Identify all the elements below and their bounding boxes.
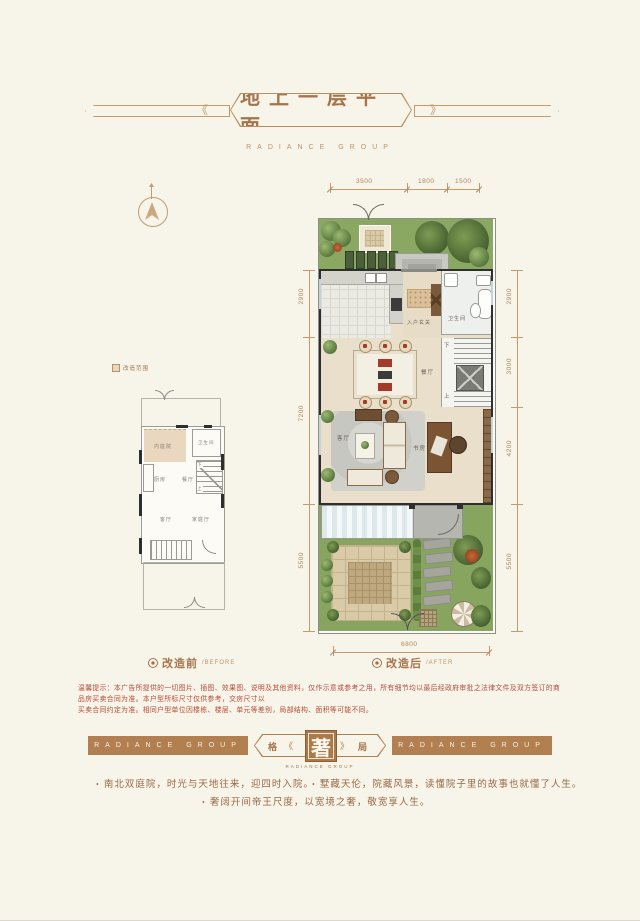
dim-label: 1800: [418, 178, 434, 185]
dim-label: 7200: [298, 405, 305, 421]
staircase: 下 上: [441, 338, 492, 407]
seal-chevron-right-icon: 》: [340, 739, 349, 752]
room-label-dining: 餐厅: [182, 476, 194, 483]
coffee-table: [355, 433, 375, 459]
room-label-family: 家庭厅: [192, 516, 210, 523]
dim-label: 5500: [506, 553, 513, 569]
rear-landing: [413, 505, 463, 539]
bathroom-area: 卫生间: [441, 271, 492, 335]
stove: [391, 298, 402, 311]
desk-chair: [449, 436, 467, 454]
before-stair-lower: [150, 540, 192, 560]
seal-char-left: 格: [268, 740, 277, 753]
sofa-second: [347, 469, 383, 486]
caption-after-en: /AFTER: [426, 660, 453, 666]
dim-label: 4200: [506, 440, 513, 456]
after-floorplan: 入户玄关 卫生间 餐厅: [318, 218, 496, 634]
room-label-courtyard: 内庭院: [154, 443, 172, 450]
stair-label-up: 上: [197, 486, 203, 492]
planter-bed: [356, 251, 365, 269]
brand-subtitle: RADIANCE GROUP: [0, 144, 640, 151]
kitchen-counter: [321, 271, 403, 285]
before-porch: [141, 398, 221, 428]
caption-before-text: 改造前: [162, 655, 198, 671]
before-courtyard-area: 内庭院: [144, 429, 186, 462]
dim-label: 3000: [506, 358, 513, 374]
room-label-bath: 卫生间: [198, 440, 215, 446]
planter-bed: [367, 251, 376, 269]
disclaimer: 温馨提示：本广告所提供的一切图片、插图、效果图、说明及其他资料，仅作示意或参考之…: [78, 684, 564, 717]
caption-after-text: 改造后: [386, 655, 422, 671]
dimension-right: 2900 3000 4200 5500: [505, 270, 523, 632]
dim-label: 5500: [298, 552, 305, 568]
footer-bullet-2: 墅藏天伦，院藏风景，读懂院子里的故事也就懂了人生。: [312, 776, 582, 790]
before-kitchen-counter: [143, 464, 154, 492]
dining-area: 餐厅: [321, 338, 441, 408]
disclaimer-line-1: 温馨提示：本广告所提供的一切图片、插图、效果图、说明及其他资料，仅作示意或参考之…: [78, 684, 564, 706]
planter-bed: [345, 251, 354, 269]
entry-hall: 入户玄关: [403, 271, 441, 338]
legend-note-text: 改造范围: [123, 364, 149, 372]
footer-ribbon-right: RADIANCE GROUP: [392, 736, 552, 755]
seal-char-center: 著: [311, 732, 331, 761]
room-label-kitchen: 厨房: [154, 476, 166, 483]
living-area: 客厅 书房: [321, 408, 491, 505]
room-label-dining: 餐厅: [421, 368, 434, 376]
caption-bullet-icon: [148, 658, 158, 668]
footer-bullet-1: 南北双庭院，时光与天地往来，迎四时入院。: [96, 776, 314, 790]
pouf: [385, 470, 399, 484]
stair-void: [456, 365, 484, 391]
dim-label: 2900: [506, 288, 513, 304]
seal-char-right: 局: [358, 740, 367, 753]
garden-gate-arc: [353, 204, 369, 220]
study-desk: [427, 422, 452, 473]
title-cartouche: 地上一层平面: [230, 93, 412, 127]
garden-gate-arc: [368, 204, 384, 220]
floorplan-poster: 《 》 地上一层平面 RADIANCE GROUP 改造范围 内庭院 卫生间 下…: [0, 0, 640, 921]
caption-bullet-icon: [372, 658, 382, 668]
stair-label-down: 下: [444, 341, 451, 349]
dim-label: 6800: [401, 641, 417, 648]
brand-seal: 著: [305, 730, 337, 762]
dim-label: 1500: [455, 178, 471, 185]
header-ornament-line-left: [85, 105, 230, 117]
room-label-entry: 入户玄关: [407, 319, 431, 326]
room-label-living: 客厅: [337, 434, 350, 442]
dining-table: [353, 350, 417, 399]
footer-ribbon-left: RADIANCE GROUP: [88, 736, 248, 755]
seal-chevron-left-icon: 《: [284, 739, 293, 752]
caption-before-en: /BEFORE: [202, 660, 235, 666]
compass-icon: [136, 183, 168, 229]
header-chevron-left-icon: 《: [196, 101, 208, 119]
entry-door-threshold: [401, 269, 437, 272]
page-title: 地上一层平面: [231, 81, 411, 139]
planter-bed: [378, 251, 387, 269]
stair-label-up: 上: [444, 392, 451, 400]
room-label-living: 客厅: [160, 516, 172, 523]
legend-note: 改造范围: [112, 364, 149, 372]
before-floorplan: 内庭院 卫生间 下 上 厨房 餐厅 客厅 家庭厅: [136, 390, 232, 622]
flower-bush: [465, 549, 479, 563]
bath-sink: [476, 275, 491, 286]
garden-patio: [331, 545, 411, 621]
dim-label: 2900: [298, 288, 305, 304]
stair-label-down: 下: [197, 462, 203, 468]
dim-label: 3500: [356, 178, 372, 185]
disclaimer-line-2: 买卖合同约定为准。相同户型单位因楼栋、楼层、单元等差别，局部结构、面积等可能不同…: [78, 706, 564, 717]
footer-bullet-3: 奢阔开间帝王尺度，以宽境之奢，敬宽享人生。: [202, 794, 430, 808]
toilet: [470, 303, 481, 318]
dimension-top: 3500 1800 1500: [330, 178, 480, 194]
seal-subtitle: RADIANCE GROUP: [270, 764, 370, 769]
entry-paving: [359, 225, 391, 253]
before-entry-door-arc: [164, 390, 174, 400]
flower-bush: [333, 243, 342, 252]
sofa-main: [383, 422, 406, 469]
entry-cabinet: [431, 284, 441, 316]
washer: [444, 273, 458, 287]
room-label-study: 书房: [413, 444, 426, 452]
console-table: [355, 409, 382, 421]
wood-deck: [321, 505, 415, 539]
legend-square-icon: [112, 364, 120, 372]
header-chevron-right-icon: 》: [430, 101, 442, 119]
dimension-left: 2900 7200 5500: [298, 270, 314, 632]
caption-before: 改造前 /BEFORE: [148, 655, 235, 671]
room-label-bath: 卫生间: [448, 315, 466, 322]
before-bath: 卫生间: [192, 429, 221, 457]
caption-after: 改造后 /AFTER: [372, 655, 453, 671]
